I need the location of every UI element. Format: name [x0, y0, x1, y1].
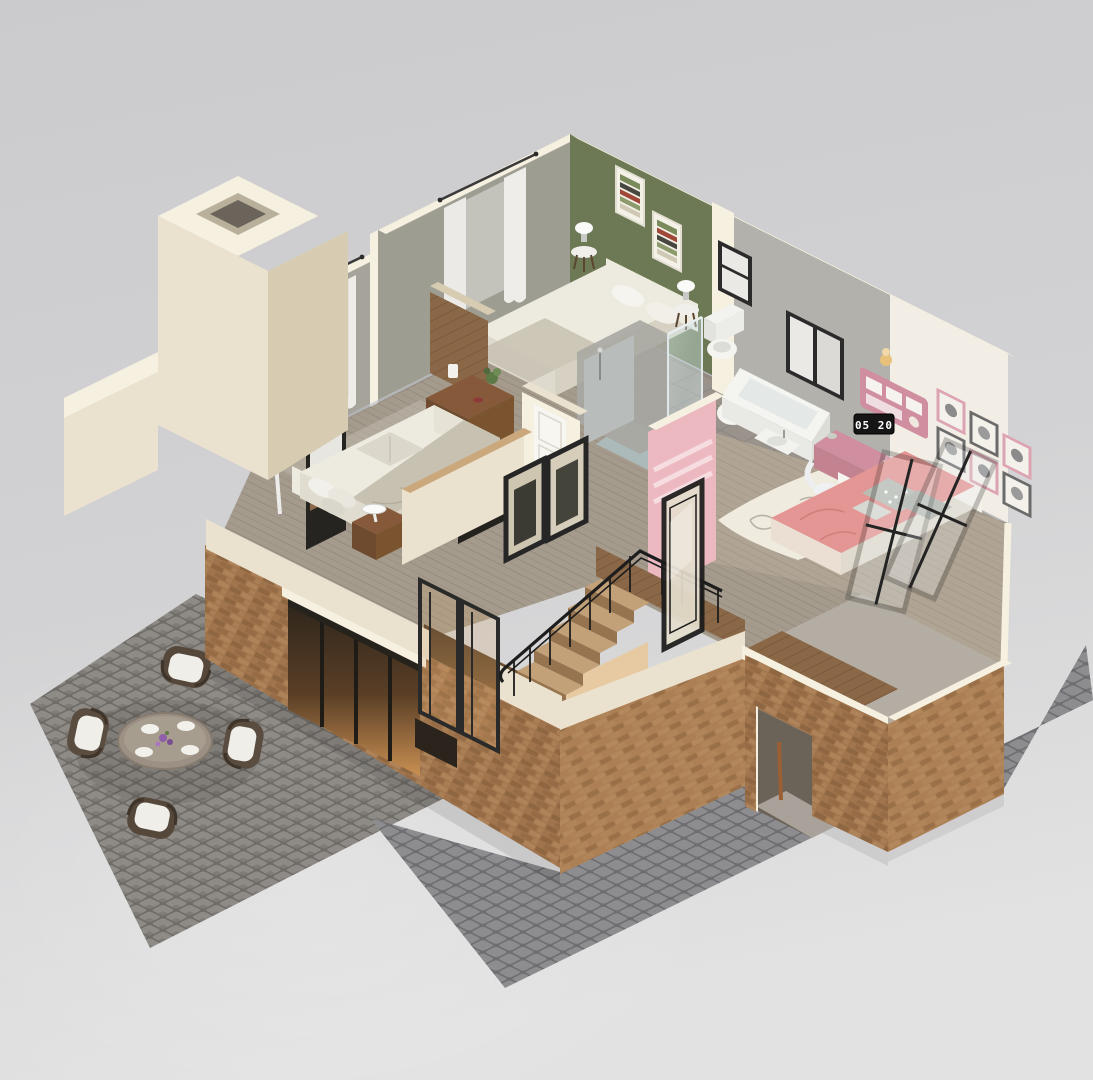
flip-clock-time: 05 20 — [855, 419, 893, 432]
table-lamp — [362, 504, 386, 514]
round-table — [118, 713, 212, 769]
floor-plan-scene: 05 20 — [0, 0, 1093, 1080]
plate — [141, 724, 159, 734]
bowl — [473, 397, 483, 402]
mirror-door — [664, 481, 702, 649]
flip-clock: 05 20 — [854, 414, 894, 434]
plate — [135, 747, 153, 757]
cream-pilaster — [712, 202, 734, 400]
kids-slab-edge — [1004, 523, 1008, 664]
curtain-right — [504, 167, 526, 303]
porch-post — [779, 742, 781, 800]
lantern — [448, 364, 458, 378]
desk-plant — [827, 433, 837, 439]
sheer-curtain — [466, 181, 504, 309]
plate — [177, 721, 195, 731]
wall-return-edge — [370, 230, 378, 404]
wing-corner-pier — [745, 655, 756, 812]
flowers — [159, 734, 167, 742]
render-canvas: 05 20 — [0, 0, 1093, 1080]
plate — [181, 745, 199, 755]
